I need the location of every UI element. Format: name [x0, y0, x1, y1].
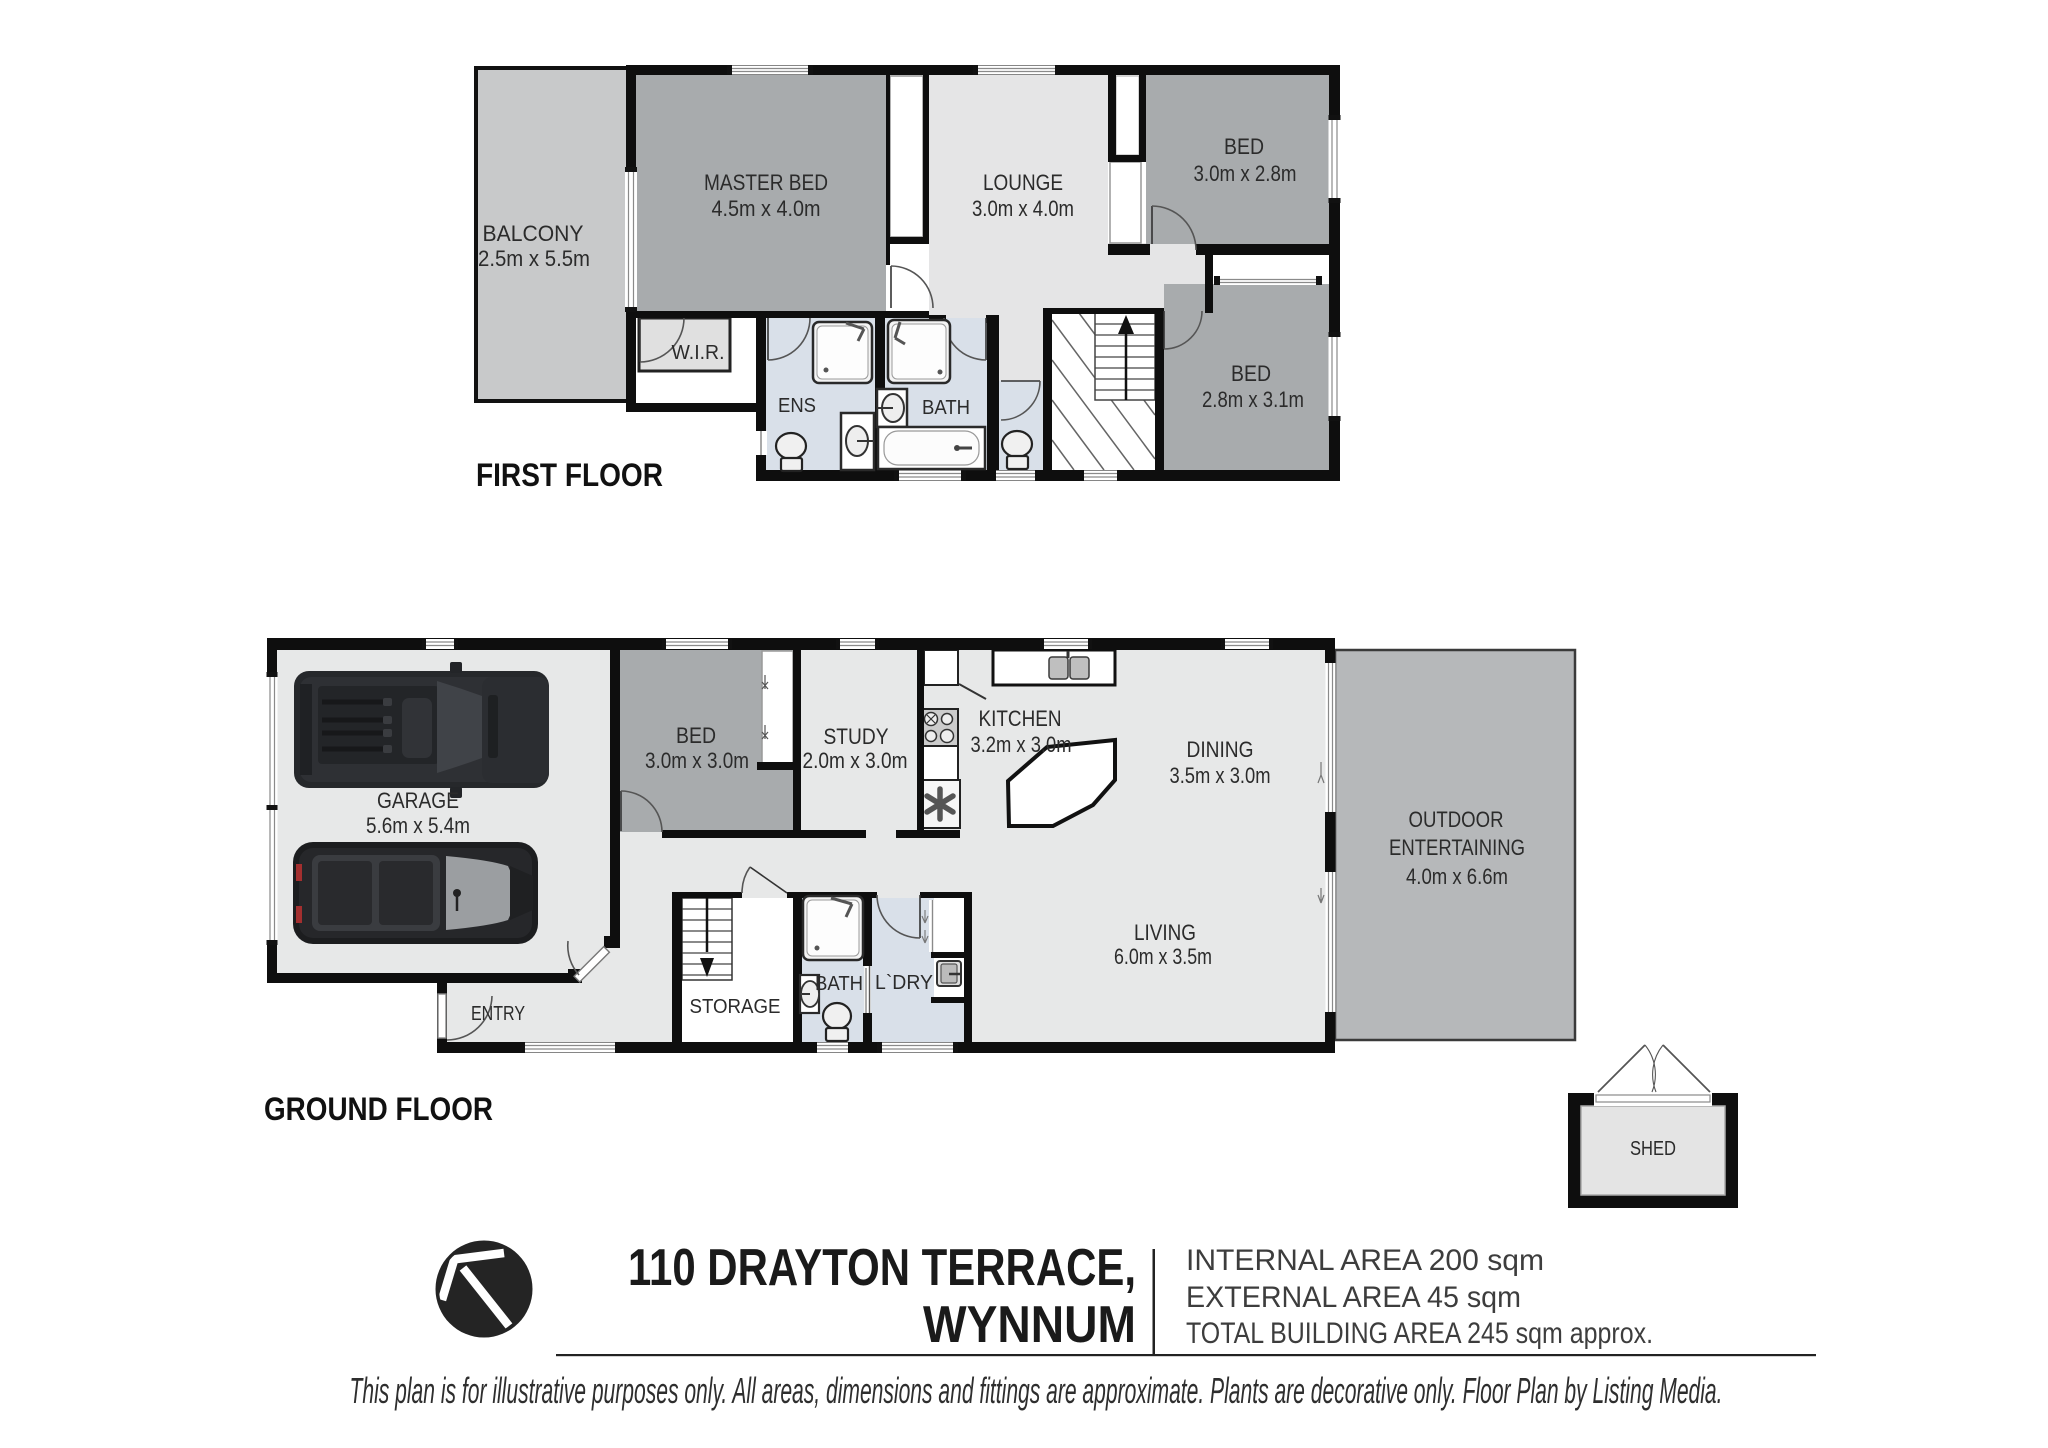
svg-text:3.5m x 3.0m: 3.5m x 3.0m [1170, 763, 1271, 788]
svg-text:3.0m x 4.0m: 3.0m x 4.0m [972, 196, 1074, 221]
svg-text:STORAGE: STORAGE [690, 996, 781, 1018]
svg-text:MASTER BED: MASTER BED [704, 170, 828, 195]
svg-text:3.0m x 2.8m: 3.0m x 2.8m [1194, 161, 1297, 186]
svg-text:This plan is for illustrative: This plan is for illustrative purposes o… [350, 1370, 1723, 1411]
svg-text:6.0m x 3.5m: 6.0m x 3.5m [1114, 944, 1212, 969]
svg-text:TOTAL BUILDING AREA 245 sqm ap: TOTAL BUILDING AREA 245 sqm approx. [1186, 1317, 1653, 1350]
svg-text:SHED: SHED [1630, 1138, 1676, 1160]
svg-text:BATH: BATH [922, 397, 970, 419]
svg-text:4.0m x 6.6m: 4.0m x 6.6m [1406, 864, 1508, 889]
svg-text:LIVING: LIVING [1134, 920, 1196, 945]
svg-text:5.6m x 5.4m: 5.6m x 5.4m [366, 813, 470, 838]
svg-text:BALCONY: BALCONY [483, 221, 584, 246]
svg-text:4.5m x 4.0m: 4.5m x 4.0m [712, 196, 821, 221]
svg-text:2.8m x 3.1m: 2.8m x 3.1m [1202, 387, 1304, 412]
svg-text:BED: BED [1224, 134, 1264, 159]
svg-text:EXTERNAL AREA 45 sqm: EXTERNAL AREA 45 sqm [1186, 1281, 1521, 1314]
svg-text:GROUND FLOOR: GROUND FLOOR [264, 1091, 493, 1127]
svg-text:ENTERTAINING: ENTERTAINING [1389, 835, 1525, 860]
svg-text:2.0m x 3.0m: 2.0m x 3.0m [803, 748, 908, 773]
svg-text:OUTDOOR: OUTDOOR [1409, 807, 1504, 832]
svg-text:LOUNGE: LOUNGE [983, 170, 1063, 195]
svg-text:BED: BED [676, 723, 716, 748]
svg-text:2.5m x 5.5m: 2.5m x 5.5m [478, 246, 590, 271]
svg-text:KITCHEN: KITCHEN [979, 706, 1062, 731]
svg-text:DINING: DINING [1187, 737, 1254, 762]
svg-text:W.I.R.: W.I.R. [672, 342, 725, 364]
svg-text:3.0m x 3.0m: 3.0m x 3.0m [645, 748, 749, 773]
svg-text:L`DRY: L`DRY [875, 972, 933, 994]
svg-text:BATH: BATH [815, 973, 863, 995]
svg-text:ENTRY: ENTRY [471, 1003, 525, 1025]
svg-text:ENS: ENS [778, 395, 816, 417]
svg-text:3.2m x 3.0m: 3.2m x 3.0m [971, 732, 1072, 757]
svg-text:STUDY: STUDY [824, 724, 889, 749]
svg-text:BED: BED [1231, 361, 1271, 386]
svg-text:INTERNAL AREA 200 sqm: INTERNAL AREA 200 sqm [1186, 1244, 1544, 1277]
svg-text:WYNNUM: WYNNUM [923, 1296, 1136, 1354]
svg-text:110 DRAYTON TERRACE,: 110 DRAYTON TERRACE, [628, 1239, 1136, 1297]
svg-text:GARAGE: GARAGE [377, 788, 459, 813]
svg-text:FIRST FLOOR: FIRST FLOOR [476, 457, 663, 493]
